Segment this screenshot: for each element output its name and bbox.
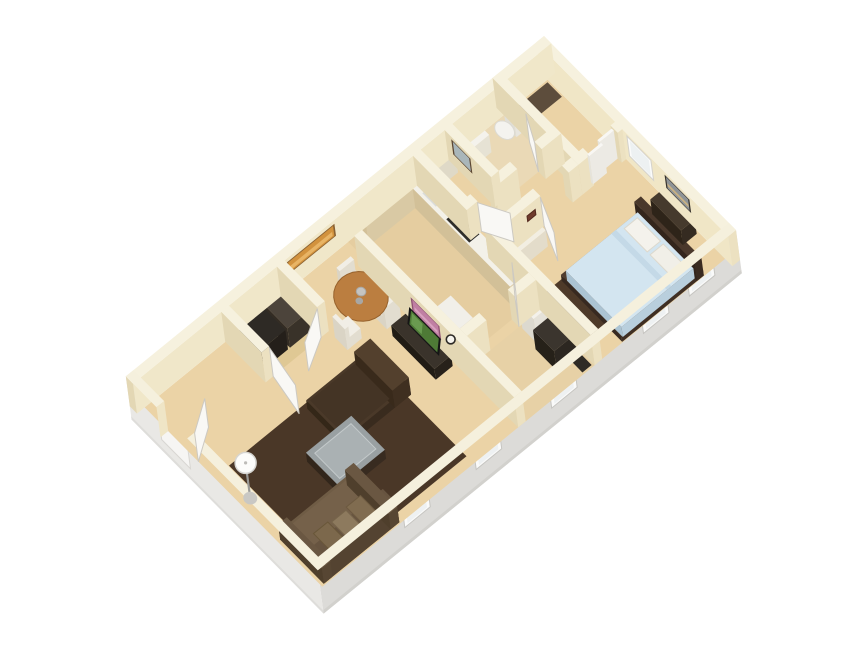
wall-clock-face [447, 336, 454, 343]
table-vase-1 [356, 287, 366, 296]
floor-lamp-finial [244, 461, 247, 464]
floor-plan-3d-render [0, 0, 860, 653]
floor-plan-image [0, 0, 860, 653]
